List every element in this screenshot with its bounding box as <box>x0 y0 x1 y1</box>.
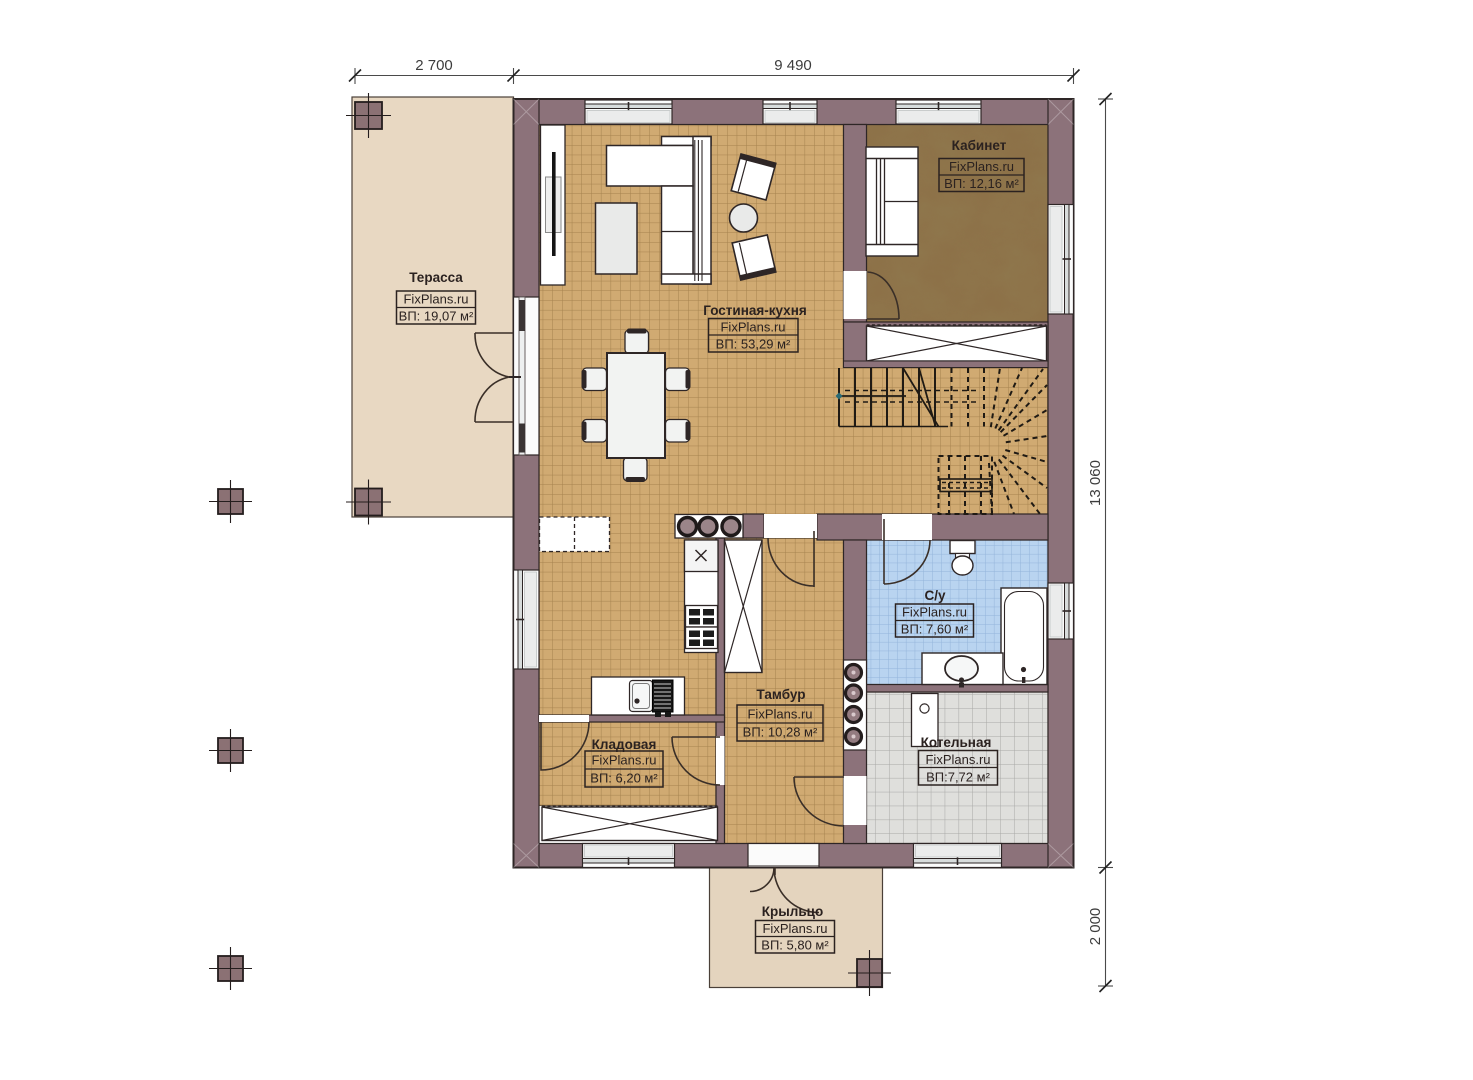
svg-text:ВП: 10,28 м²: ВП: 10,28 м² <box>743 725 818 740</box>
svg-text:Кладовая: Кладовая <box>592 737 657 752</box>
svg-text:Терасса: Терасса <box>409 270 463 285</box>
svg-text:9 490: 9 490 <box>774 57 812 74</box>
svg-text:Кабинет: Кабинет <box>952 138 1007 153</box>
svg-text:ВП: 7,60 м²: ВП: 7,60 м² <box>901 622 969 637</box>
svg-text:13 060: 13 060 <box>1087 460 1104 506</box>
svg-text:FixPlans.ru: FixPlans.ru <box>403 292 468 307</box>
svg-text:2 700: 2 700 <box>415 57 453 74</box>
svg-text:FixPlans.ru: FixPlans.ru <box>925 752 990 767</box>
svg-text:Гостиная-кухня: Гостиная-кухня <box>703 303 806 318</box>
svg-text:FixPlans.ru: FixPlans.ru <box>591 753 656 768</box>
svg-text:ВП: 5,80 м²: ВП: 5,80 м² <box>761 938 829 953</box>
svg-text:ВП:7,72 м²: ВП:7,72 м² <box>926 770 990 785</box>
svg-text:С/у: С/у <box>924 588 946 603</box>
svg-text:2 000: 2 000 <box>1087 908 1104 946</box>
svg-text:Котельная: Котельная <box>921 735 992 750</box>
svg-text:FixPlans.ru: FixPlans.ru <box>762 921 827 936</box>
svg-text:FixPlans.ru: FixPlans.ru <box>720 320 785 335</box>
svg-text:Крыльцо: Крыльцо <box>762 904 823 919</box>
svg-text:FixPlans.ru: FixPlans.ru <box>902 605 967 620</box>
svg-text:ВП: 12,16 м²: ВП: 12,16 м² <box>944 176 1019 191</box>
svg-text:ВП: 19,07 м²: ВП: 19,07 м² <box>399 309 474 324</box>
svg-text:FixPlans.ru: FixPlans.ru <box>747 707 812 722</box>
svg-text:ВП: 6,20 м²: ВП: 6,20 м² <box>590 771 658 786</box>
svg-text:FixPlans.ru: FixPlans.ru <box>949 159 1014 174</box>
svg-text:Тамбур: Тамбур <box>757 687 806 702</box>
svg-text:ВП: 53,29 м²: ВП: 53,29 м² <box>716 337 791 352</box>
